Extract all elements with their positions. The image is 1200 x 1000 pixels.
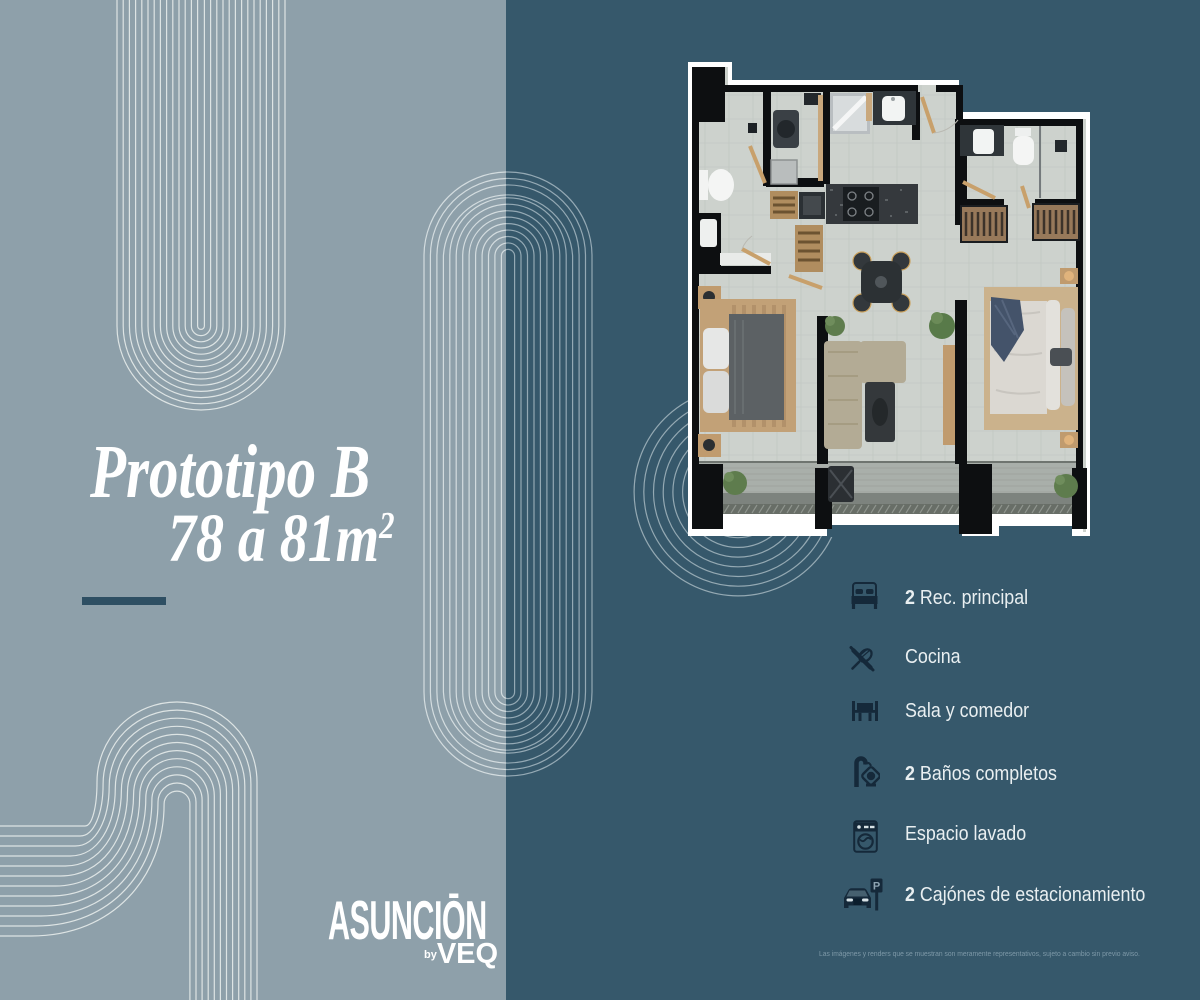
svg-text:P: P bbox=[873, 881, 880, 893]
